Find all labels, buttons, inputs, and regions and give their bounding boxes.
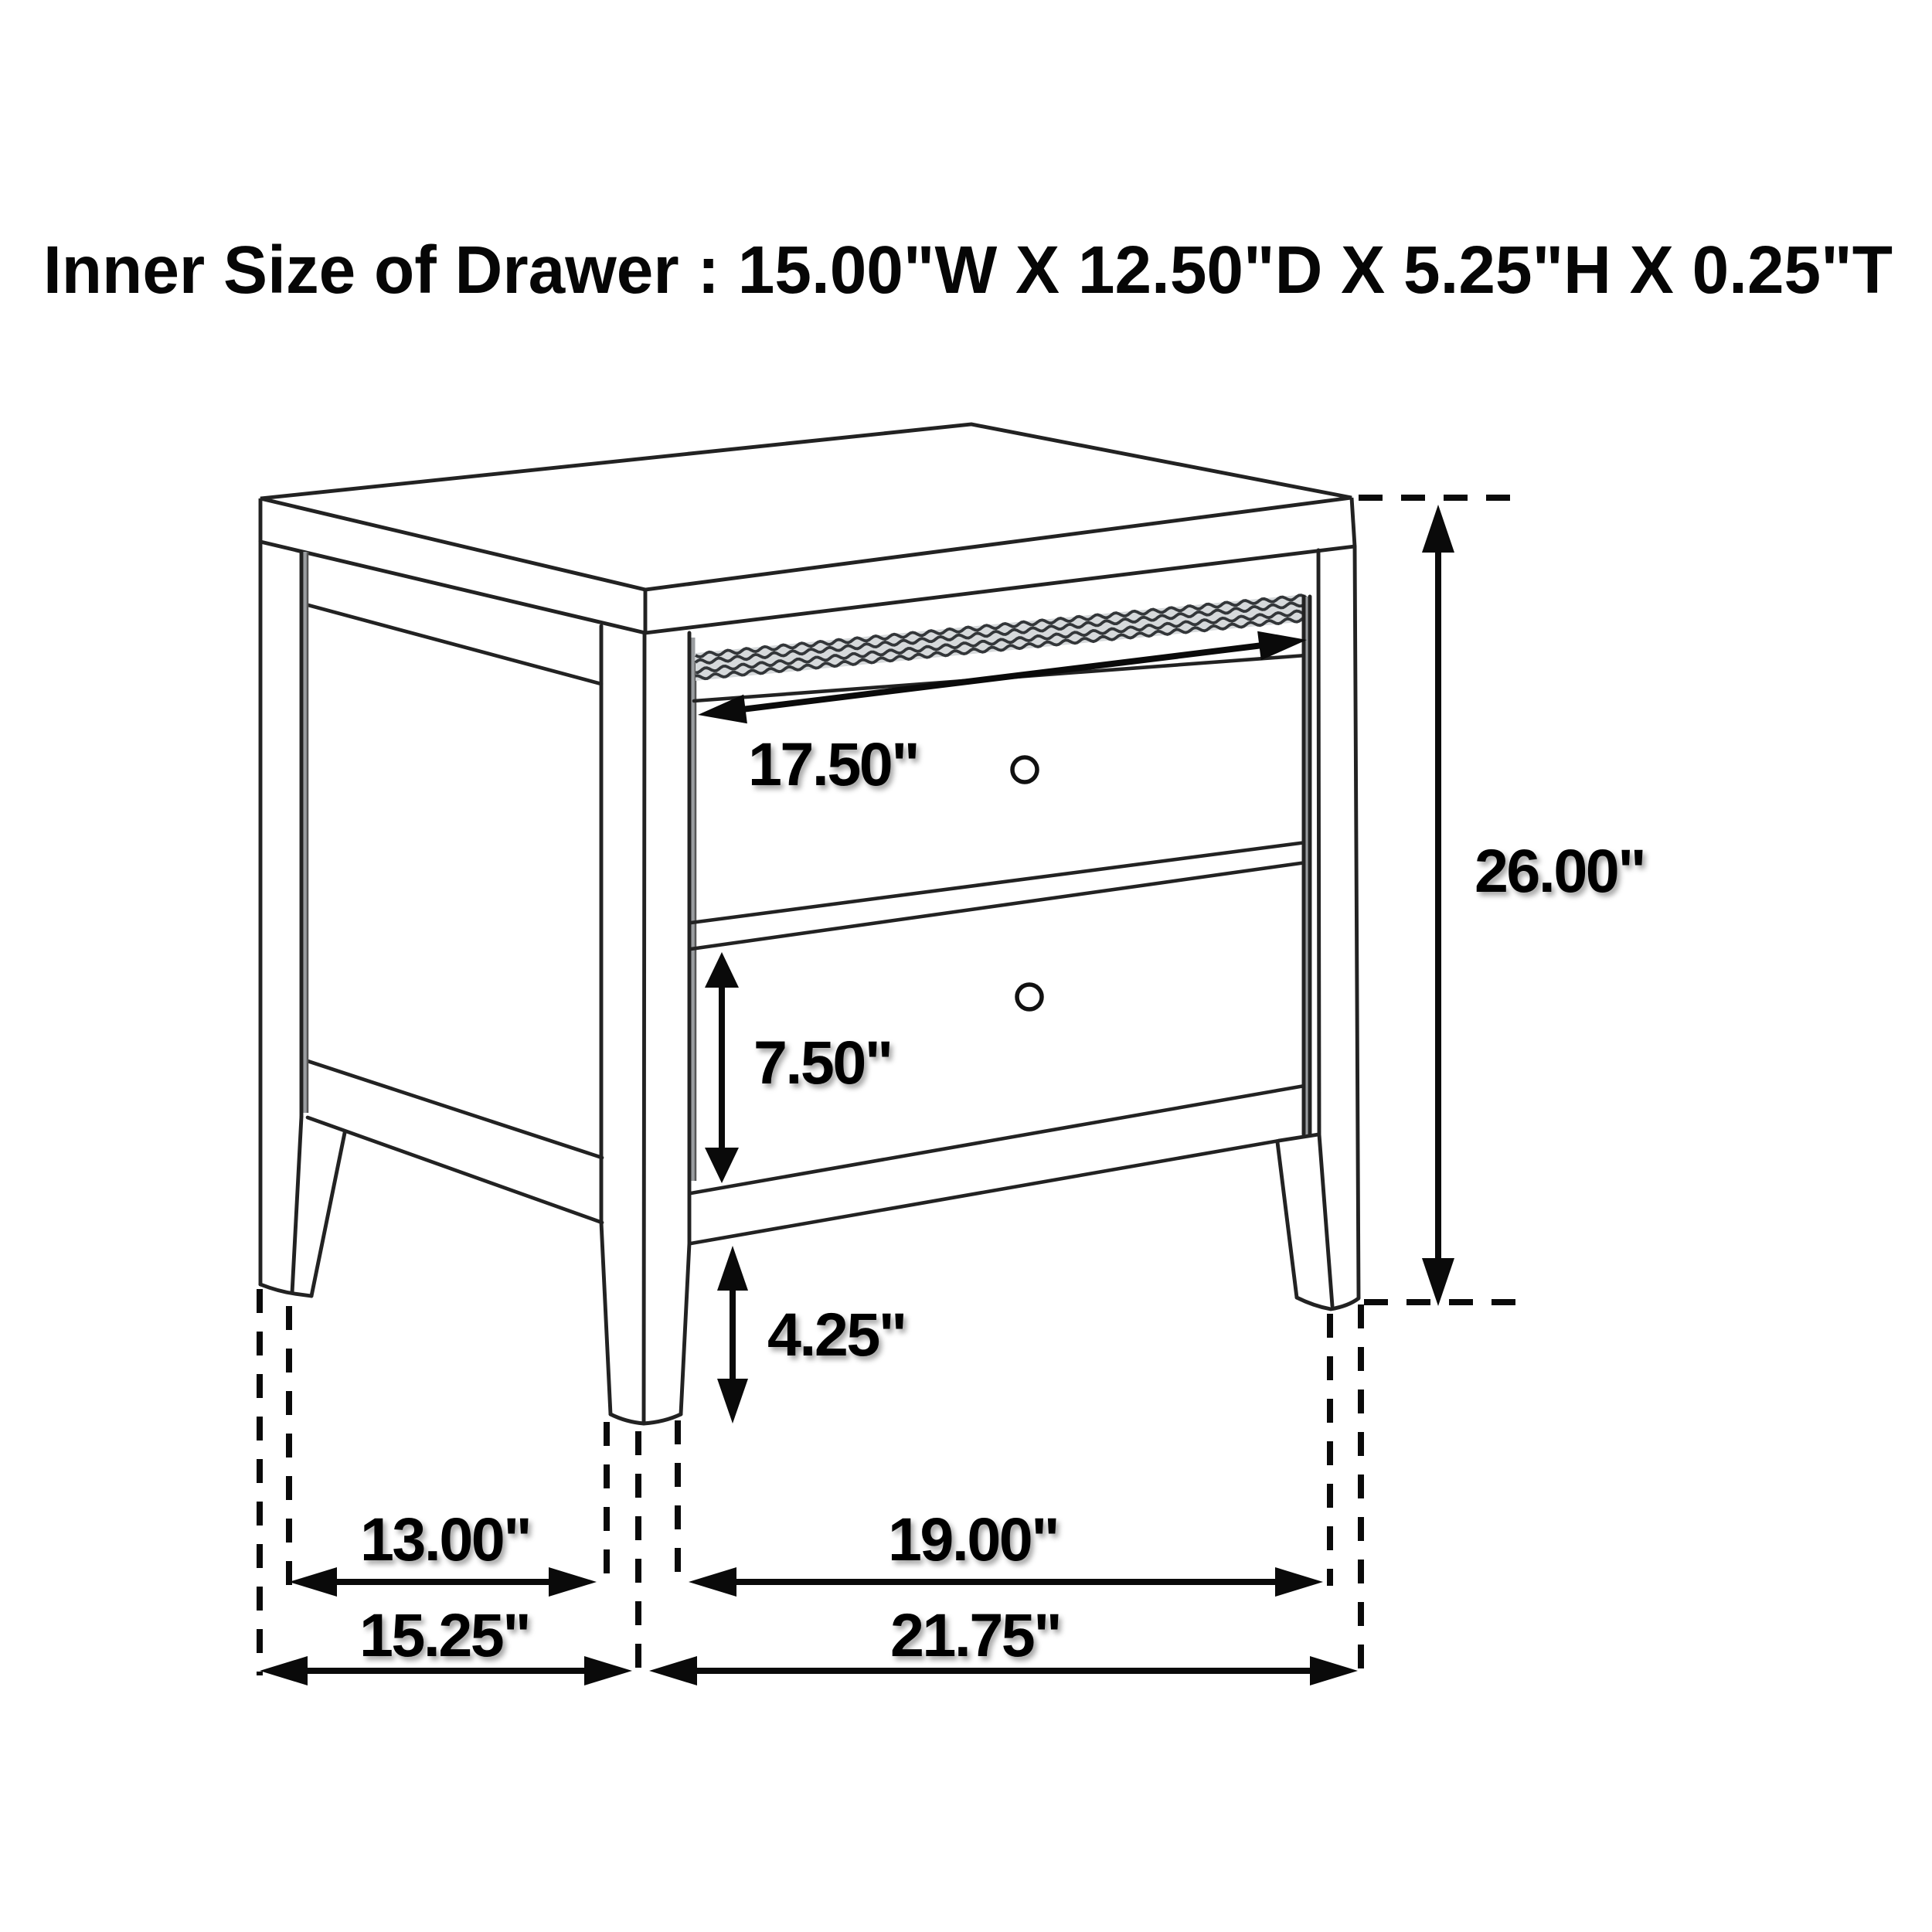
svg-text:Inner Size of Drawer : 15.00"W: Inner Size of Drawer : 15.00"W X 12.50"D…	[43, 233, 1893, 308]
svg-text:15.25": 15.25"	[359, 1600, 529, 1669]
svg-text:13.00": 13.00"	[360, 1505, 530, 1573]
svg-text:19.00": 19.00"	[888, 1505, 1058, 1573]
svg-text:21.75": 21.75"	[890, 1600, 1060, 1669]
svg-text:26.00": 26.00"	[1475, 836, 1645, 905]
svg-text:4.25": 4.25"	[767, 1300, 906, 1369]
svg-text:7.50": 7.50"	[753, 1028, 892, 1097]
svg-text:17.50": 17.50"	[748, 730, 918, 798]
